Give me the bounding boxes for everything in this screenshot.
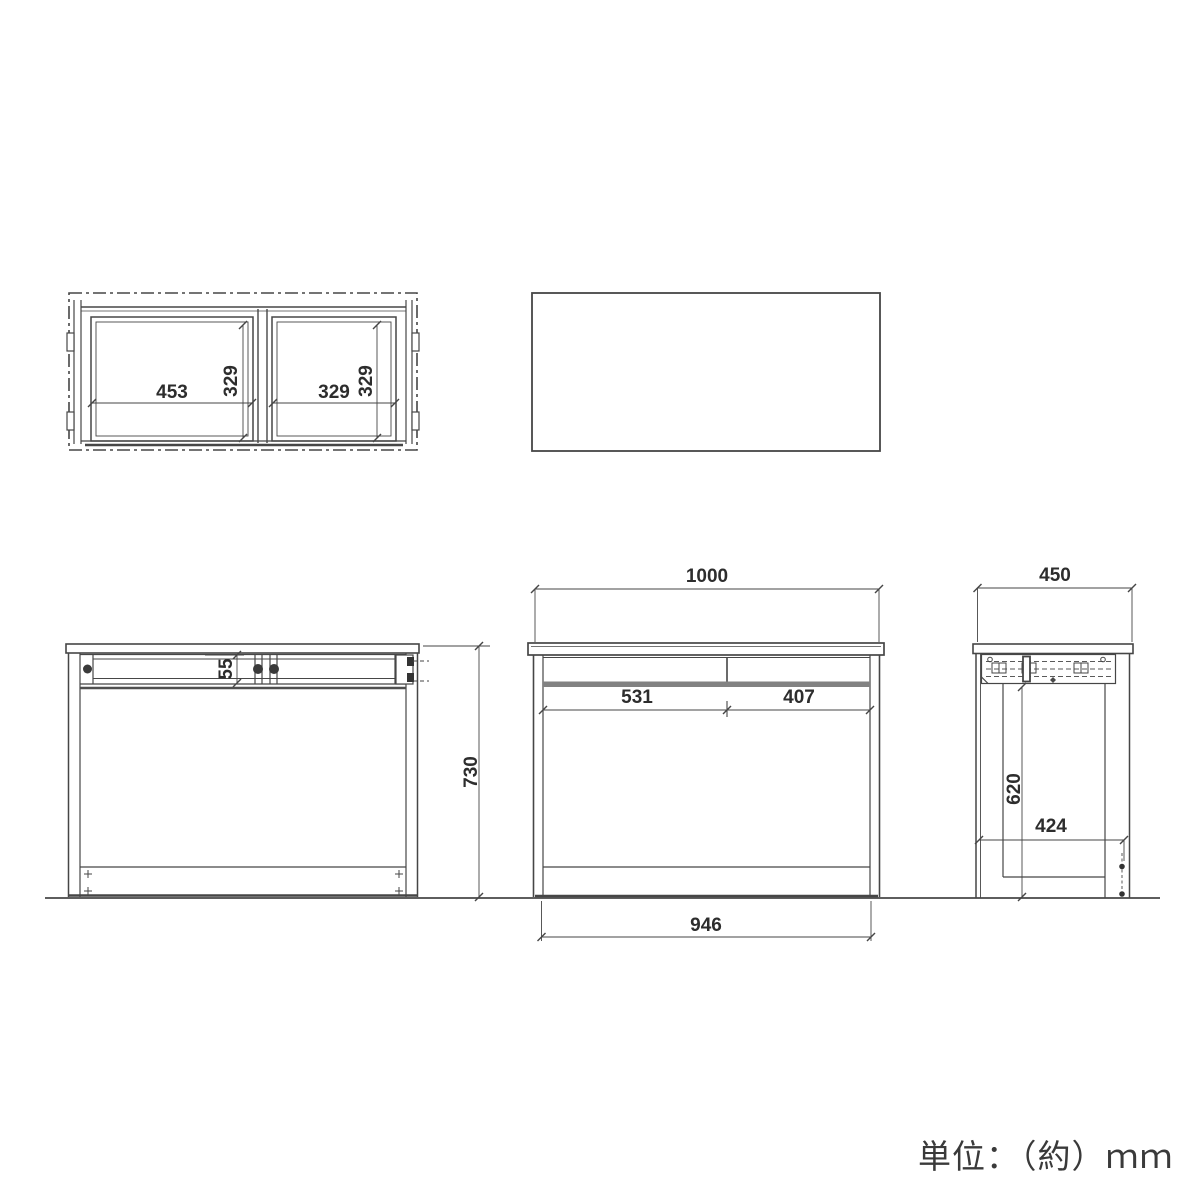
rear-tabletop bbox=[66, 644, 419, 653]
rear-bottom-screws bbox=[84, 870, 403, 895]
drawer-fronts bbox=[543, 658, 870, 688]
dim-under-rail-height: 620 bbox=[1004, 773, 1025, 805]
plan-view: 453 329 329 329 bbox=[67, 293, 419, 450]
drawer-dimensions bbox=[539, 701, 874, 717]
tabletop-outline bbox=[532, 293, 880, 451]
dim-left-width: 453 bbox=[156, 382, 188, 403]
rear-rail-screw-center-a bbox=[253, 664, 263, 674]
rear-rail-screw-center-b bbox=[269, 664, 279, 674]
dim-inner-depth: 424 bbox=[1035, 816, 1067, 837]
dim-overall-height: 730 bbox=[461, 756, 482, 788]
side-tabletop bbox=[973, 644, 1133, 654]
plan-dimensions bbox=[88, 321, 399, 442]
rear-view: 55 730 bbox=[66, 642, 490, 901]
rear-rail bbox=[80, 655, 429, 685]
technical-drawing: 453 329 329 329 bbox=[0, 0, 1200, 1200]
drawer-handle-rail bbox=[543, 682, 870, 688]
tabletop-plan-view bbox=[532, 293, 880, 451]
dim-right-depth: 329 bbox=[356, 365, 377, 397]
dim-left-drawer: 531 bbox=[621, 687, 653, 708]
side-view: 450 bbox=[973, 565, 1136, 901]
rear-rail-screw-left bbox=[83, 665, 92, 674]
dim-overall-width: 1000 bbox=[686, 566, 728, 587]
dim-inner-width: 946 bbox=[690, 915, 722, 936]
dim-rail-height: 55 bbox=[216, 658, 237, 680]
dim-overall-depth: 450 bbox=[1039, 565, 1071, 586]
dim-right-width: 329 bbox=[318, 382, 350, 403]
dim-right-drawer: 407 bbox=[783, 687, 815, 708]
front-view: 1000 531 407 bbox=[528, 566, 884, 941]
depth-dimension bbox=[974, 584, 1137, 642]
front-tabletop bbox=[528, 643, 884, 655]
side-slide-stopper bbox=[1023, 657, 1030, 682]
width-dimension bbox=[531, 585, 883, 642]
unit-note: 単位：（約）ｍｍ bbox=[918, 1130, 1174, 1178]
side-drawer-rail bbox=[982, 655, 1116, 684]
dim-left-depth: 329 bbox=[221, 365, 242, 397]
